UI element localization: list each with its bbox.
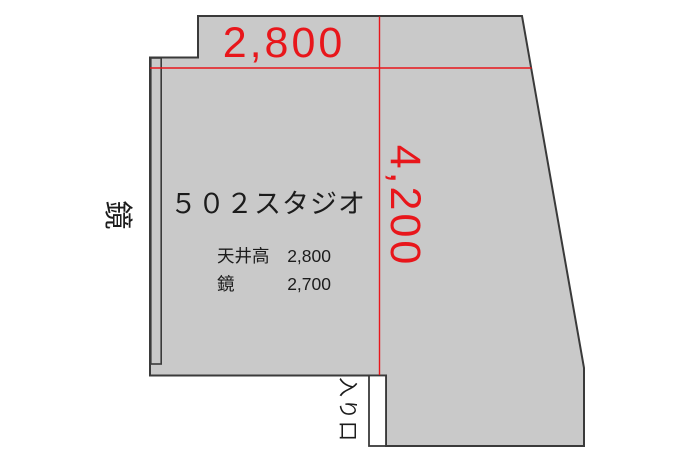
depth-dimension-label: 4,200	[384, 120, 426, 292]
spec-list: 天井高 2,800 鏡 2,700	[217, 242, 331, 298]
spec-mirror-label: 鏡	[217, 270, 235, 298]
mirror-wall	[151, 58, 161, 364]
spec-row-ceiling: 天井高 2,800	[217, 242, 331, 270]
room-title: ５０２スタジオ	[170, 189, 366, 220]
entrance-opening	[369, 376, 386, 447]
spec-row-mirror: 鏡 2,700	[217, 270, 331, 298]
spec-ceiling-label: 天井高	[217, 242, 270, 270]
room-outline	[150, 16, 584, 446]
floor-plan: 2,800 4,200 ５０２スタジオ 天井高 2,800 鏡 2,700 鏡 …	[0, 0, 700, 465]
spec-ceiling-value: 2,800	[287, 242, 331, 270]
spec-mirror-value: 2,700	[287, 270, 331, 298]
entrance-label: 入り口	[334, 376, 359, 444]
width-dimension-label: 2,800	[200, 22, 368, 65]
mirror-side-label: 鏡	[101, 195, 133, 235]
